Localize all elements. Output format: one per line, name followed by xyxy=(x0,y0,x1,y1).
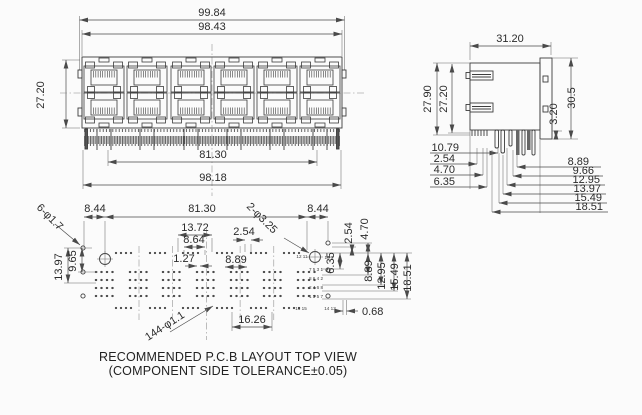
pcb-layout: 8.44 81.30 8.44 6-φ1.7 2-φ3.25 144-φ1.1 xyxy=(34,201,414,344)
dim-front-overall-width: 99.84 xyxy=(198,7,226,19)
pin-label-7531: 7 5 3 1 xyxy=(309,267,323,272)
pin-label-8642: 8 6 4 2 xyxy=(309,276,323,281)
dim-side-height-outer: 27.90 xyxy=(422,85,434,113)
dim-pcb-v-18-51: 18.51 xyxy=(402,264,414,292)
callout-corner-holes: 6-φ1.7 xyxy=(34,202,65,233)
dim-front-outer-pin-span: 98.18 xyxy=(199,172,227,184)
mounting-holes xyxy=(81,241,330,298)
dim-pcb-v-2-54: 2.54 xyxy=(343,222,355,243)
side-right-dim-stack: 8.89 9.66 12.95 13.97 15.49 18.51 xyxy=(492,140,608,213)
connector-body-side xyxy=(470,63,540,130)
dim-pcb-span: 81.30 xyxy=(188,203,216,215)
dim-front-height: 27.20 xyxy=(35,81,47,109)
callout-pin-holes: 144-φ1.1 xyxy=(143,309,187,343)
dim-pcb-1-27: 1.27 xyxy=(173,253,194,265)
pin-hole-pattern xyxy=(95,252,316,309)
dim-pcb-8-89-mid: 8.89 xyxy=(225,254,246,266)
side-left-dim-stack: 10.79 2.54 4.70 6.35 xyxy=(430,130,498,189)
dim-pcb-8-64: 8.64 xyxy=(183,234,204,246)
dim-side-stack-left-3: 6.35 xyxy=(434,176,455,188)
side-view: 31.20 27.90 27.20 3.20 30.5 xyxy=(422,33,608,213)
caption-line1: RECOMMENDED P.C.B LAYOUT TOP VIEW xyxy=(99,350,357,364)
caption-line2: (COMPONENT SIDE TOLERANCE±0.05) xyxy=(109,364,348,378)
dim-pcb-v-4-70: 4.70 xyxy=(359,218,371,239)
pin-label-10-9: 10 9 xyxy=(325,255,334,260)
dim-side-height-total: 30.5 xyxy=(566,87,578,108)
dim-pcb-v-8-89: 8.89 xyxy=(363,260,375,281)
pin-label-16-15: 16 15 xyxy=(295,306,307,311)
dim-pcb-v-15-49: 15.49 xyxy=(389,263,401,291)
dim-pcb-v-12-95: 12.95 xyxy=(376,262,388,290)
dim-side-stack-left-2: 4.70 xyxy=(434,164,455,176)
face-plate xyxy=(540,58,552,139)
dim-pcb-l-9-65: 9.65 xyxy=(67,250,79,271)
dim-front-body-width: 98.43 xyxy=(198,21,226,33)
dim-pcb-margin-right: 8.44 xyxy=(307,203,328,215)
front-view: 99.84 98.43 27.20 xyxy=(35,7,364,196)
dim-pcb-margin-left: 8.44 xyxy=(84,203,105,215)
dim-pcb-0-68: 0.68 xyxy=(362,306,383,318)
technical-drawing: 99.84 98.43 27.20 xyxy=(0,0,642,415)
dim-pcb-2-54-top: 2.54 xyxy=(233,226,254,238)
dim-side-panel-tail: 3.20 xyxy=(548,103,560,124)
pin-label-2468: 2 4 6 8 xyxy=(309,285,323,290)
dim-pcb-13-72: 13.72 xyxy=(181,222,209,234)
pin-label-12-11: 12 11 xyxy=(296,254,308,259)
dim-side-stack-right-5: 18.51 xyxy=(575,201,603,213)
drawing-canvas: 99.84 98.43 27.20 xyxy=(0,0,642,415)
side-pins xyxy=(495,130,535,155)
dim-side-height-body: 27.20 xyxy=(438,85,450,113)
dim-pcb-16-26: 16.26 xyxy=(238,314,266,326)
dim-pcb-l-13-97: 13.97 xyxy=(53,253,65,281)
dim-front-pin-span: 81.30 xyxy=(199,149,227,161)
pin-label-14-13: 14 13 xyxy=(324,306,336,311)
dim-side-depth: 31.20 xyxy=(496,33,524,45)
pin-label-1357: 1 3 5 7 xyxy=(309,294,323,299)
pin-comb xyxy=(84,129,340,146)
